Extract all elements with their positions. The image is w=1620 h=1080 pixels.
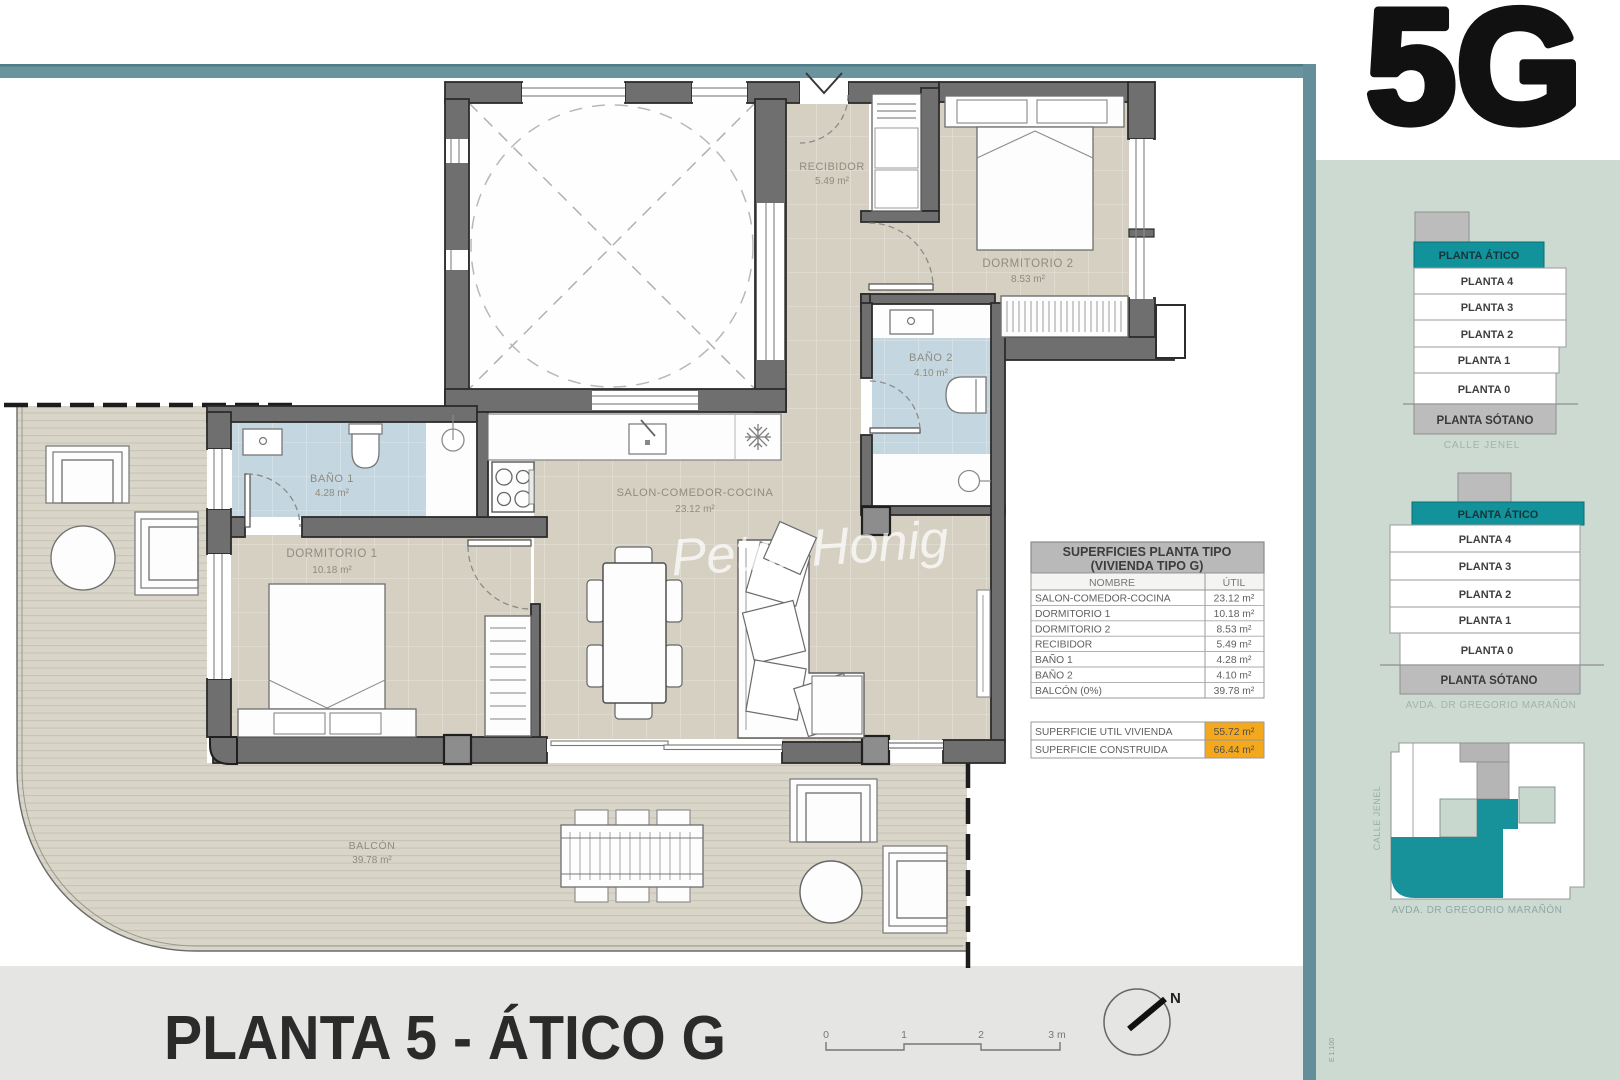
svg-text:55.72 m²: 55.72 m² <box>1214 727 1255 738</box>
svg-text:SUPERFICIE UTIL VIVIENDA: SUPERFICIE UTIL VIVIENDA <box>1035 727 1173 738</box>
svg-text:5G: 5G <box>1366 0 1582 157</box>
svg-text:SUPERFICIE CONSTRUIDA: SUPERFICIE CONSTRUIDA <box>1035 745 1168 756</box>
svg-text:1: 1 <box>901 1029 907 1041</box>
svg-text:10.18 m²: 10.18 m² <box>312 565 352 576</box>
svg-text:23.12 m²: 23.12 m² <box>675 504 715 515</box>
svg-text:ÚTIL: ÚTIL <box>1223 576 1246 589</box>
svg-text:RECIBIDOR: RECIBIDOR <box>799 161 865 173</box>
svg-text:39.78 m²: 39.78 m² <box>1214 686 1255 697</box>
svg-text:PLANTA 0: PLANTA 0 <box>1458 384 1511 396</box>
svg-text:BAÑO 1: BAÑO 1 <box>310 472 354 485</box>
svg-text:4.28 m²: 4.28 m² <box>315 488 350 499</box>
svg-text:0: 0 <box>823 1029 829 1041</box>
svg-text:PLANTA 5 - ÁTICO G: PLANTA 5 - ÁTICO G <box>164 1004 726 1073</box>
svg-text:(VIVIENDA TIPO G): (VIVIENDA TIPO G) <box>1091 559 1204 573</box>
svg-text:PLANTA 3: PLANTA 3 <box>1461 302 1514 314</box>
svg-text:PLANTA 4: PLANTA 4 <box>1459 534 1512 546</box>
svg-text:CALLE JENEL: CALLE JENEL <box>1444 440 1521 451</box>
svg-text:PLANTA ÁTICO: PLANTA ÁTICO <box>1458 508 1539 521</box>
svg-text:SUPERFICIES PLANTA TIPO: SUPERFICIES PLANTA TIPO <box>1063 545 1232 559</box>
svg-text:RECIBIDOR: RECIBIDOR <box>1035 640 1092 651</box>
svg-text:39.78 m²: 39.78 m² <box>352 855 392 866</box>
svg-text:DORMITORIO 1: DORMITORIO 1 <box>286 548 377 560</box>
svg-text:PLANTA 4: PLANTA 4 <box>1461 276 1514 288</box>
svg-text:DORMITORIO 2: DORMITORIO 2 <box>1035 624 1111 635</box>
svg-text:10.18 m²: 10.18 m² <box>1214 609 1255 620</box>
svg-text:AVDA. DR GREGORIO MARAÑÓN: AVDA. DR GREGORIO MARAÑÓN <box>1392 903 1563 916</box>
svg-text:PLANTA SÓTANO: PLANTA SÓTANO <box>1437 414 1534 427</box>
svg-text:SALON-COMEDOR-COCINA: SALON-COMEDOR-COCINA <box>1035 594 1171 605</box>
svg-text:PLANTA 3: PLANTA 3 <box>1459 561 1512 573</box>
svg-text:23.12 m²: 23.12 m² <box>1214 594 1255 605</box>
svg-text:5.49 m²: 5.49 m² <box>1217 640 1252 651</box>
svg-text:SALON-COMEDOR-COCINA: SALON-COMEDOR-COCINA <box>617 487 774 499</box>
svg-text:BAÑO 1: BAÑO 1 <box>1035 653 1073 666</box>
svg-text:3 m: 3 m <box>1048 1029 1066 1041</box>
svg-text:4.10 m²: 4.10 m² <box>1217 671 1252 682</box>
svg-text:4.28 m²: 4.28 m² <box>1217 655 1252 666</box>
svg-text:E 1:100: E 1:100 <box>1329 1038 1336 1062</box>
svg-text:BALCÓN: BALCÓN <box>349 839 396 852</box>
svg-text:PLANTA 0: PLANTA 0 <box>1461 645 1514 657</box>
svg-text:CALLE JENEL: CALLE JENEL <box>1372 786 1382 851</box>
svg-text:DORMITORIO 2: DORMITORIO 2 <box>982 258 1073 270</box>
svg-text:DORMITORIO 1: DORMITORIO 1 <box>1035 609 1111 620</box>
svg-text:AVDA. DR GREGORIO MARAÑÓN: AVDA. DR GREGORIO MARAÑÓN <box>1406 698 1577 711</box>
svg-text:66.44 m²: 66.44 m² <box>1214 745 1255 756</box>
svg-text:BAÑO 2: BAÑO 2 <box>909 351 953 364</box>
svg-text:4.10 m²: 4.10 m² <box>914 368 949 379</box>
svg-text:BALCÓN (0%): BALCÓN (0%) <box>1035 684 1102 697</box>
svg-text:PLANTA 1: PLANTA 1 <box>1458 355 1511 367</box>
svg-text:2: 2 <box>978 1029 984 1041</box>
svg-text:NOMBRE: NOMBRE <box>1089 577 1135 589</box>
svg-text:5.49 m²: 5.49 m² <box>815 176 850 187</box>
svg-text:PLANTA 2: PLANTA 2 <box>1461 329 1514 341</box>
svg-text:BAÑO 2: BAÑO 2 <box>1035 669 1073 682</box>
svg-text:8.53 m²: 8.53 m² <box>1217 624 1252 635</box>
svg-text:PLANTA 2: PLANTA 2 <box>1459 589 1512 601</box>
svg-text:N: N <box>1170 990 1181 1007</box>
svg-text:8.53 m²: 8.53 m² <box>1011 274 1046 285</box>
svg-text:PLANTA 1: PLANTA 1 <box>1459 615 1512 627</box>
svg-text:PLANTA SÓTANO: PLANTA SÓTANO <box>1441 674 1538 687</box>
svg-text:PLANTA ÁTICO: PLANTA ÁTICO <box>1439 249 1520 262</box>
